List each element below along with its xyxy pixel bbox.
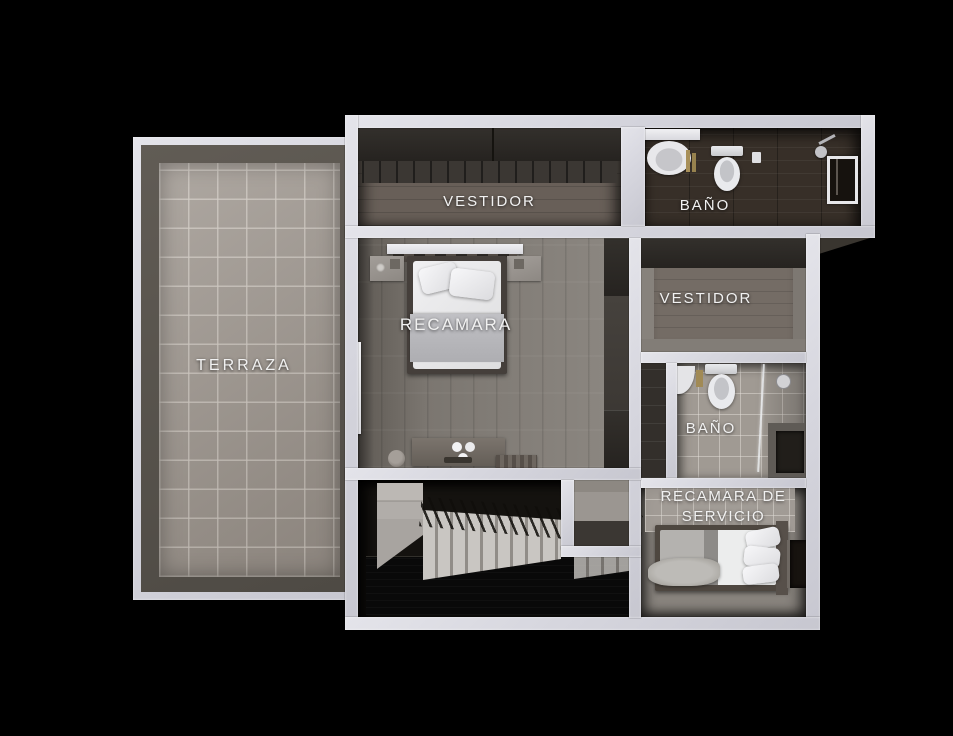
wall-vestidor2-bottom — [641, 352, 806, 363]
wall-corridor-vertical — [629, 238, 641, 618]
nightstand-box — [390, 259, 400, 269]
wall-left — [345, 115, 358, 630]
tray-icon — [444, 457, 472, 463]
floor-plan: TERRAZA — [0, 0, 953, 736]
closet-block-bottom — [604, 410, 629, 468]
wall-stair-l-horizontal — [561, 546, 641, 557]
towel-bar-icon — [686, 150, 690, 172]
crumpled-blanket-icon — [648, 558, 720, 586]
window-divider — [836, 159, 838, 195]
pillow-icon — [448, 267, 495, 300]
nightstand-icon — [507, 256, 541, 281]
bath-counter — [645, 129, 700, 140]
closet-ledge — [641, 339, 806, 352]
terraza-label: TERRAZA — [133, 356, 355, 376]
recamara-label: RECAMARA — [381, 315, 531, 335]
headboard-shelf — [387, 244, 523, 254]
bano-principal-label: BAÑO — [645, 196, 765, 216]
stool-icon — [388, 450, 405, 467]
bano-secundario-label: BAÑO — [641, 419, 781, 439]
towel-bar-icon — [692, 153, 696, 172]
wall-right-main — [806, 234, 820, 630]
wardrobe-icon — [641, 238, 806, 268]
wardrobe-icon — [358, 127, 621, 161]
wall-mid-horizontal — [345, 226, 875, 238]
sink-icon — [647, 141, 691, 175]
decor-icon — [465, 442, 475, 452]
window-icon — [827, 156, 858, 204]
wardrobe-divider — [492, 127, 494, 161]
toilet-bowl-icon — [714, 157, 740, 191]
closet-block-top — [604, 238, 629, 296]
wall-stair-l-vertical — [561, 480, 574, 550]
lamp-icon — [376, 263, 385, 272]
toilet-icon — [705, 364, 737, 374]
wall-bath-right — [861, 115, 875, 234]
vestidor-secundario-label: VESTIDOR — [641, 289, 771, 309]
wall-bedroom-bottom — [345, 468, 641, 480]
recamara-servicio-label: RECAMARA DE SERVICIO — [645, 487, 802, 527]
cabinet-icon — [696, 370, 703, 387]
shower-icon — [776, 374, 791, 389]
shower-icon — [815, 146, 827, 158]
wall-top — [345, 115, 875, 128]
wall-switch — [752, 152, 761, 163]
toilet-bowl-icon — [708, 374, 735, 409]
stair-landing-icon — [377, 483, 423, 519]
decor-icon — [452, 442, 462, 452]
vestidor-principal-label: VESTIDOR — [358, 192, 621, 212]
wall-vestidor-bath-divider — [621, 127, 645, 226]
toilet-icon — [711, 146, 743, 156]
nightstand-box — [514, 259, 524, 269]
wardrobe-rail-icon — [362, 161, 617, 183]
corridor-floor — [574, 480, 629, 546]
wall-bottom — [345, 617, 820, 630]
